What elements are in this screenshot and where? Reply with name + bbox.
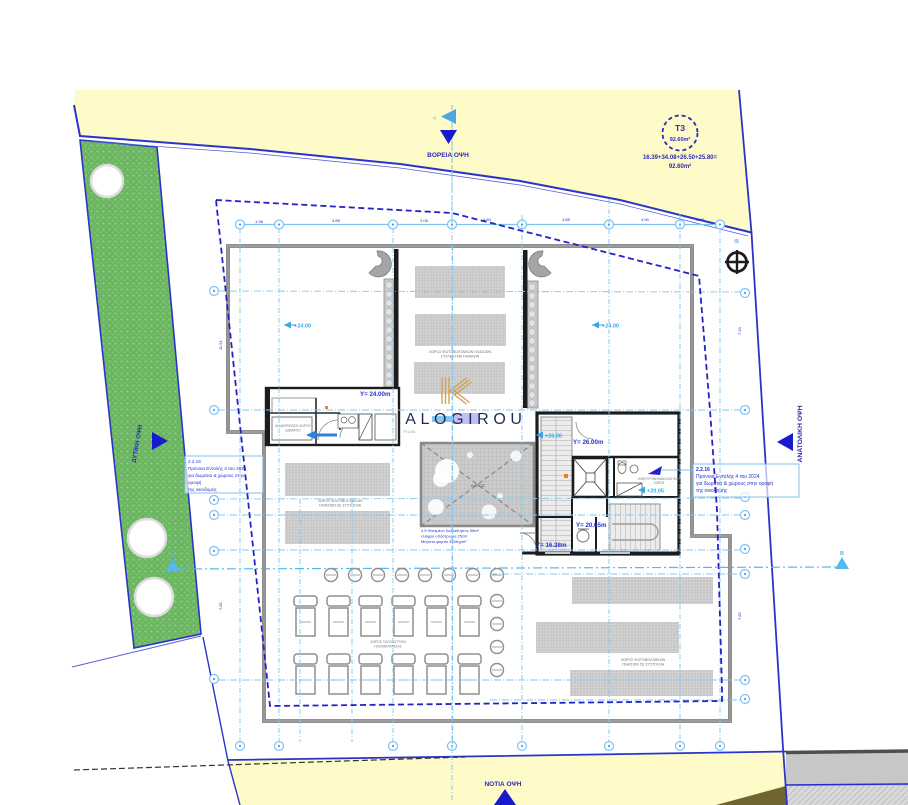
svg-text:7.43: 7.43 [737, 326, 742, 335]
svg-text:ΧΩΡΟΣ ΞΑΠΛΩΣΤΡΩΝ: ΧΩΡΟΣ ΞΑΠΛΩΣΤΡΩΝ [370, 640, 406, 644]
svg-text:ΧΩΡΟΣ ΦΩΤΟΒΟΛΤΑΪΚΩΝ: ΧΩΡΟΣ ΦΩΤΟΒΟΛΤΑΪΚΩΝ [318, 499, 363, 503]
svg-text:T3: T3 [675, 123, 685, 133]
svg-text:2.2.16: 2.2.16 [696, 467, 710, 473]
svg-text:1.90: 1.90 [696, 217, 705, 222]
svg-text:11.91: 11.91 [218, 340, 223, 350]
svg-text:KALOGIROU: KALOGIROU [390, 411, 527, 428]
svg-text:Υ= 24.00m: Υ= 24.00m [360, 391, 391, 398]
svg-text:2.2.16: 2.2.16 [188, 459, 201, 464]
svg-text:Πρόνοια Εντολής 4 του 2024: Πρόνοια Εντολής 4 του 2024 [188, 465, 247, 471]
svg-text:+24.00: +24.00 [602, 324, 619, 330]
svg-text:ΑΝΑΤΟΛΙΚΗ ΟΨΗ: ΑΝΑΤΟΛΙΚΗ ΟΨΗ [797, 405, 804, 462]
svg-text:4.85: 4.85 [332, 218, 341, 223]
svg-text:ΔΙΑΜΟΡΦΩΣΗ ΧΩΡΟΥ: ΔΙΑΜΟΡΦΩΣΗ ΧΩΡΟΥ [275, 424, 312, 428]
svg-text:ΤΥ 3.04: ΤΥ 3.04 [403, 430, 415, 434]
svg-text:για δωμάτια & χώρους στην: για δωμάτια & χώρους στην [188, 472, 245, 478]
svg-text:για δωμάτια & χώρους στην οροφ: για δωμάτια & χώρους στην οροφή [696, 480, 773, 487]
svg-text:της οικοδομής: της οικοδομής [188, 486, 218, 492]
svg-text:ΠΛΑΙΣΙΩΝ ΣΕ ΣΥΣΤΟΙΧΙΑ: ΠΛΑΙΣΙΩΝ ΣΕ ΣΥΣΤΟΙΧΙΑ [622, 663, 665, 667]
svg-text:2.06: 2.06 [420, 218, 429, 223]
svg-text:7.82: 7.82 [737, 611, 742, 620]
svg-text:+26.00: +26.00 [545, 434, 562, 440]
svg-text:7.82: 7.82 [218, 601, 223, 610]
svg-text:+20.05: +20.05 [647, 489, 664, 495]
svg-text:Υ= 20.05m: Υ= 20.05m [576, 522, 607, 529]
svg-text:ΧΩΡΟΣ: ΧΩΡΟΣ [653, 481, 664, 485]
svg-text:+24.00: +24.00 [294, 324, 311, 330]
svg-text:92.60m²: 92.60m² [669, 163, 691, 170]
svg-text:ΗΛΙΟΘΕΡΑΠΕΙΑΣ: ΗΛΙΟΘΕΡΑΠΕΙΑΣ [374, 645, 401, 649]
svg-text:Υ= 16.38m: Υ= 16.38m [536, 542, 567, 549]
svg-text:B: B [171, 553, 175, 559]
svg-text:ΔΩΜΑΤΙΟ: ΔΩΜΑΤΙΟ [285, 429, 301, 433]
svg-text:4.85: 4.85 [562, 217, 571, 222]
svg-text:ΣΥΛΛΕΚΤΩΝ ΗΛΙΑΚΩΝ: ΣΥΛΛΕΚΤΩΝ ΗΛΙΑΚΩΝ [441, 355, 480, 359]
svg-text:ΝΟΤΙΑ ΟΨΗ: ΝΟΤΙΑ ΟΨΗ [484, 781, 521, 788]
svg-text:4.90: 4.90 [641, 217, 650, 222]
svg-text:<: < [433, 116, 436, 122]
svg-text:Υ= 26.00m: Υ= 26.00m [573, 439, 604, 446]
svg-text:της οικοδομής: της οικοδομής [696, 487, 728, 494]
svg-text:ΒΟΡΕΙΑ ΟΨΗ: ΒΟΡΕΙΑ ΟΨΗ [427, 152, 469, 159]
svg-text:οροφή: οροφή [188, 479, 202, 485]
svg-text:B: B [840, 551, 844, 557]
svg-text:Πρόνοια Εντολής 4 του 2024: Πρόνοια Εντολής 4 του 2024 [696, 473, 760, 480]
svg-text:92.60m²: 92.60m² [670, 136, 691, 143]
svg-text:ΧΩΡΟΣ ΦΩΤΟΒΟΛΤΑΪΚΩΝ: ΧΩΡΟΣ ΦΩΤΟΒΟΛΤΑΪΚΩΝ [621, 658, 666, 662]
svg-text:16.39+34.08+26.50+25.80=: 16.39+34.08+26.50+25.80= [643, 155, 718, 161]
svg-text:ΧΩΡΟΣ ΦΩΤΟΒΟΛΤΑΪΚΩΝ ΠΛΑΙΣΙΩΝ: ΧΩΡΟΣ ΦΩΤΟΒΟΛΤΑΪΚΩΝ ΠΛΑΙΣΙΩΝ [429, 350, 492, 354]
svg-text:4.80: 4.80 [483, 217, 492, 222]
svg-text:Μέγιστο φορτίο 350Kg/m²: Μέγιστο φορτίο 350Kg/m² [421, 539, 467, 544]
svg-text:4.5 Φυτεμένο δώμα/Κήπος 55m²: 4.5 Φυτεμένο δώμα/Κήπος 55m² [421, 528, 480, 533]
svg-text:ελαφρύ υπόστρωμα 25cm: ελαφρύ υπόστρωμα 25cm [421, 534, 468, 539]
svg-text:ΠΛΑΙΣΙΩΝ ΣΕ ΣΥΣΤΟΙΧΙΑ: ΠΛΑΙΣΙΩΝ ΣΕ ΣΥΣΤΟΙΧΙΑ [319, 504, 362, 508]
svg-text:ΚΗΠΟΣ: ΚΗΠΟΣ [471, 483, 486, 488]
svg-text:1.98: 1.98 [255, 219, 264, 224]
